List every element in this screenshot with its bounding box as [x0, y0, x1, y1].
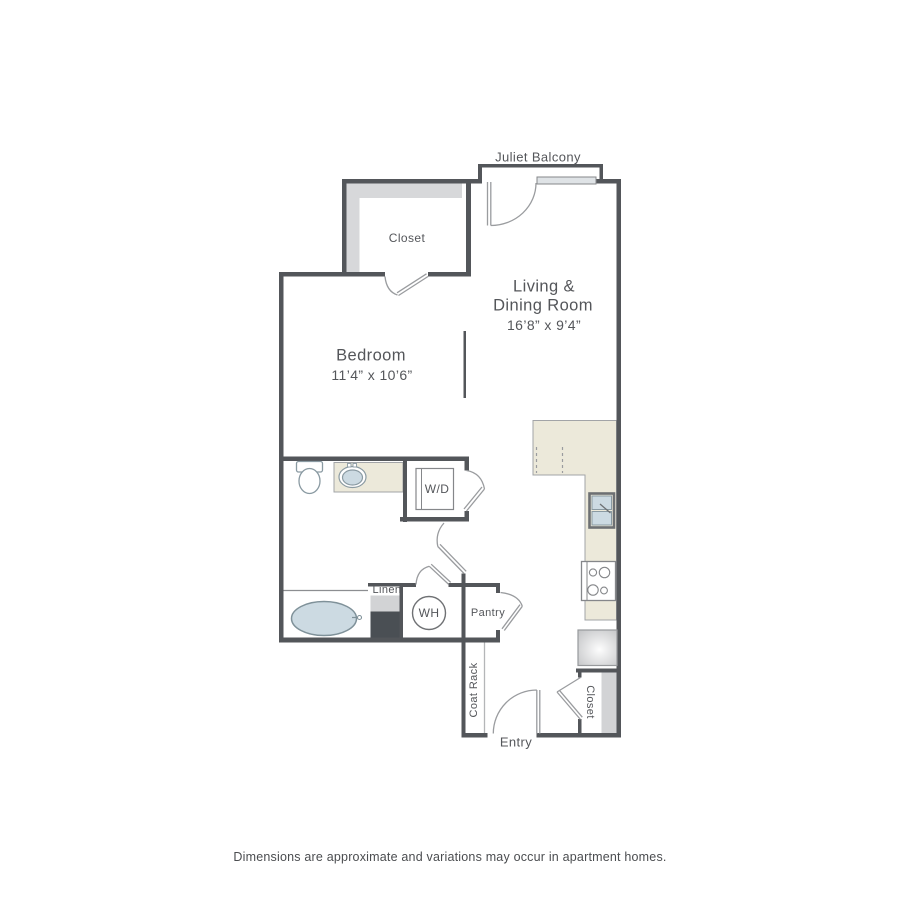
- bathroom-hall-door: [437, 523, 466, 574]
- laundry-door: [464, 471, 485, 512]
- disclaimer-text: Dimensions are approximate and variation…: [233, 850, 666, 864]
- balcony-door: [488, 182, 537, 226]
- living-room-label-1: Living &: [513, 278, 575, 297]
- juliet-balcony-label: Juliet Balcony: [495, 150, 581, 165]
- bedroom-dims: 11’4” x 10’6”: [331, 367, 412, 383]
- linen-label: Linen: [373, 584, 402, 596]
- water-heater-door: [416, 564, 451, 584]
- bedroom-closet-door: [385, 274, 428, 296]
- stove: [582, 562, 616, 601]
- floor-plan-drawing: [0, 0, 900, 900]
- coat-rack-label: Coat Rack: [468, 663, 480, 718]
- entry-closet-door: [557, 678, 582, 720]
- closet-top-label: Closet: [389, 231, 425, 245]
- bathtub: [292, 602, 362, 636]
- refrigerator: [578, 630, 617, 666]
- washer-dryer-label: W/D: [425, 482, 450, 496]
- entry-label: Entry: [500, 735, 532, 750]
- closet-bottom-label: Closet: [584, 685, 596, 719]
- floor-plan-page: Juliet Balcony Closet Living & Dining Ro…: [0, 0, 900, 900]
- bedroom-label: Bedroom: [336, 347, 406, 366]
- pantry-label: Pantry: [471, 607, 505, 619]
- living-room-label-2: Dining Room: [493, 297, 593, 316]
- living-room-dims: 16’8” x 9’4”: [507, 317, 581, 333]
- toilet: [297, 462, 323, 494]
- balcony-window: [537, 177, 596, 184]
- water-heater-label: WH: [419, 606, 440, 620]
- room-divider-line: [464, 331, 467, 398]
- entry-door: [493, 690, 540, 734]
